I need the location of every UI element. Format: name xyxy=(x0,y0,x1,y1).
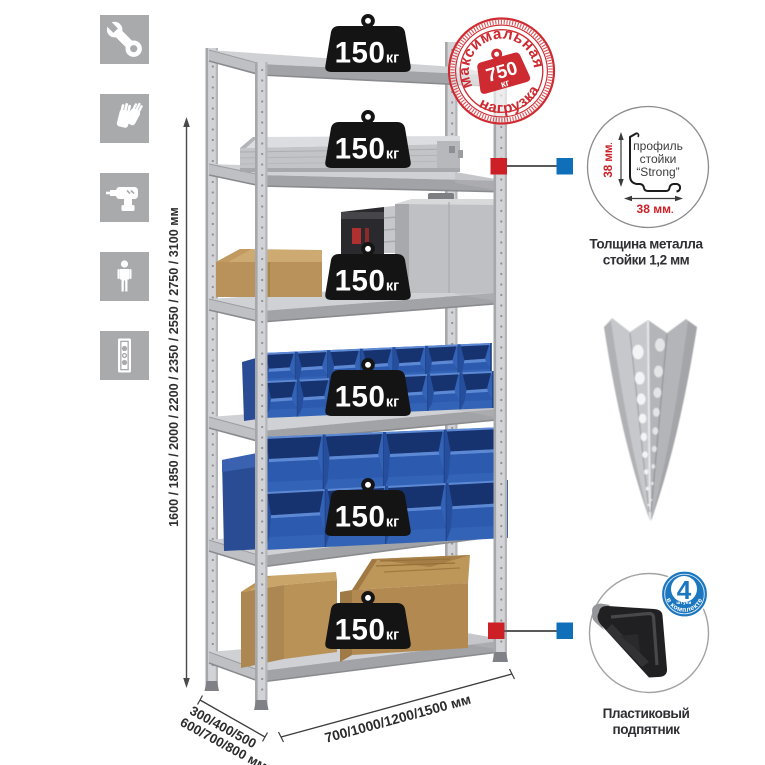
svg-text:профиль: профиль xyxy=(633,139,683,153)
svg-text:Пластиковый: Пластиковый xyxy=(603,706,690,721)
svg-text:150: 150 xyxy=(335,614,386,647)
svg-text:38 мм.: 38 мм. xyxy=(603,142,615,177)
svg-text:кг: кг xyxy=(386,628,399,644)
svg-text:150: 150 xyxy=(335,381,386,414)
svg-text:150: 150 xyxy=(335,501,386,534)
svg-text:“Strong”: “Strong” xyxy=(636,165,679,179)
svg-text:кг: кг xyxy=(386,279,399,295)
svg-text:кг: кг xyxy=(386,51,399,67)
svg-text:стойки 1,2 мм: стойки 1,2 мм xyxy=(603,253,690,268)
svg-text:подпятник: подпятник xyxy=(612,722,680,737)
svg-text:38 мм.: 38 мм. xyxy=(637,202,674,216)
svg-text:150: 150 xyxy=(335,133,386,166)
svg-text:кг: кг xyxy=(386,147,399,163)
svg-text:кг: кг xyxy=(386,395,399,411)
svg-text:1600 / 1850 / 2000 / 2200 / 23: 1600 / 1850 / 2000 / 2200 / 2350 / 2550 … xyxy=(167,207,181,527)
svg-text:150: 150 xyxy=(335,37,386,70)
svg-text:150: 150 xyxy=(335,265,386,298)
svg-text:штуки: штуки xyxy=(676,600,691,605)
svg-text:стойки: стойки xyxy=(640,152,677,166)
svg-text:Толщина металла: Толщина металла xyxy=(589,237,703,252)
svg-text:кг: кг xyxy=(386,515,399,531)
